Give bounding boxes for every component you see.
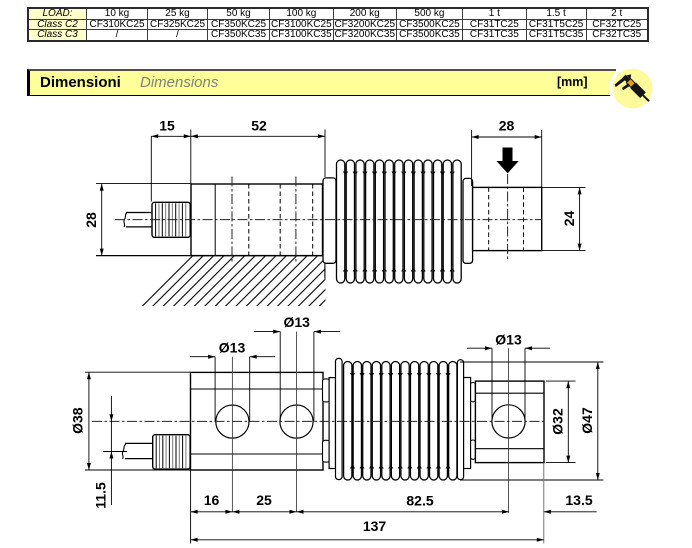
svg-text:Ø13: Ø13 <box>283 314 310 330</box>
svg-text:24: 24 <box>561 211 577 227</box>
svg-text:Ø32: Ø32 <box>550 408 566 435</box>
svg-text:25: 25 <box>256 492 272 508</box>
svg-text:Ø13: Ø13 <box>219 339 246 355</box>
svg-text:Ø38: Ø38 <box>69 407 85 434</box>
svg-text:28: 28 <box>499 118 515 134</box>
svg-text:Ø47: Ø47 <box>579 407 595 434</box>
svg-text:13.5: 13.5 <box>565 492 592 508</box>
svg-text:15: 15 <box>159 118 175 134</box>
svg-text:137: 137 <box>363 518 387 534</box>
svg-text:28: 28 <box>83 212 99 228</box>
svg-text:16: 16 <box>204 492 220 508</box>
svg-text:82.5: 82.5 <box>406 492 433 508</box>
svg-text:11.5: 11.5 <box>92 482 108 509</box>
svg-text:52: 52 <box>251 118 267 134</box>
svg-text:Ø13: Ø13 <box>495 332 522 348</box>
